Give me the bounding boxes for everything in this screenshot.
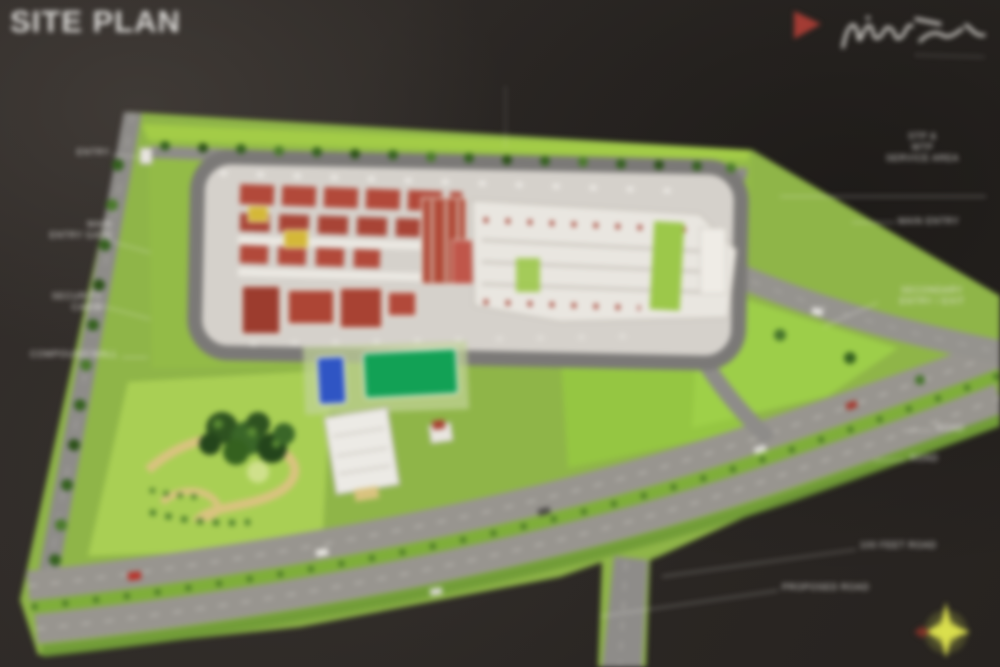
leader-line	[505, 86, 506, 148]
label-line: MAIN ENTRY	[898, 216, 959, 226]
label-main-entry-gate: MAIN ENTRY GATE	[28, 219, 112, 241]
leader-line	[780, 196, 986, 197]
car-red	[128, 571, 142, 581]
sports-court	[363, 349, 458, 399]
label-100-feet-road: 100 FEET ROAD	[860, 540, 975, 551]
amenity-roof-yellow	[284, 230, 308, 248]
label-road-1: ROAD	[936, 423, 986, 434]
label-main-entry: MAIN ENTRY	[898, 216, 983, 227]
compass-icon	[900, 596, 992, 664]
pavilion-roof	[432, 419, 445, 430]
white-block-mass	[472, 200, 736, 322]
label-proposed-road: PROPOSED ROAD	[782, 582, 887, 593]
label-line: MAIN	[87, 219, 112, 229]
label-line: SECURITY	[52, 291, 102, 301]
label-line: COMPOUND WALL	[30, 349, 118, 359]
block	[288, 290, 334, 324]
leader-line	[902, 430, 932, 431]
label-security-cabin: SECURITY CABIN	[2, 291, 102, 313]
leader-line	[852, 222, 895, 223]
courtyard-lawn	[650, 221, 685, 310]
block	[388, 292, 416, 316]
label-secondary-entry: SECONDARY ENTRY / EXIT	[882, 285, 982, 307]
leader-line	[874, 460, 906, 461]
label-road-2: ROAD	[910, 453, 965, 464]
courtyard-lawn	[516, 258, 540, 292]
leader-line	[122, 357, 148, 358]
label-compound-wall: COMPOUND WALL	[18, 349, 118, 360]
site-plan-slide: SITE PLAN	[0, 0, 1000, 667]
label-line: ENTRY	[77, 147, 110, 157]
sand-patch	[247, 461, 269, 483]
swimming-pool	[317, 356, 346, 404]
label-line: PROPOSED ROAD	[782, 582, 869, 592]
amenity-roof-yellow	[248, 206, 268, 222]
north-star-icon	[923, 602, 970, 658]
entry-gate	[140, 148, 152, 164]
label-line: CABIN	[71, 302, 102, 312]
label-entry: ENTRY	[30, 147, 110, 158]
label-line: ROAD	[936, 423, 964, 433]
white-apartment-blocks	[472, 200, 736, 322]
label-line: STP &	[908, 131, 937, 141]
site-plan-map	[0, 0, 1000, 667]
label-line: ENTRY / EXIT	[900, 296, 965, 306]
label-line: SERVICE AREA	[886, 153, 959, 163]
label-service-area: STP & WTP SERVICE AREA	[865, 131, 980, 164]
label-line: ROAD	[910, 453, 938, 463]
label-line: SECONDARY	[901, 285, 963, 295]
blurred-scene: SITE PLAN	[0, 0, 1000, 667]
white-tower	[700, 228, 726, 294]
label-line: ENTRY GATE	[49, 230, 112, 240]
block	[242, 286, 280, 334]
label-line: WTP	[912, 142, 934, 152]
label-line: 100 FEET ROAD	[860, 540, 937, 550]
block	[340, 288, 382, 328]
